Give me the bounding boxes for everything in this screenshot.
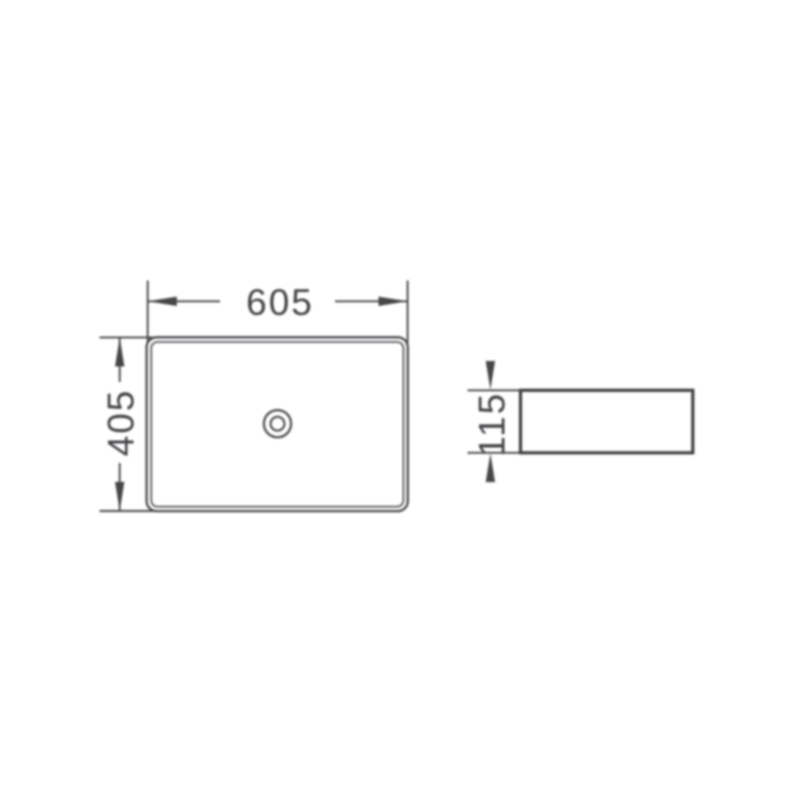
svg-text:405: 405 — [100, 389, 141, 457]
svg-text:115: 115 — [472, 392, 513, 457]
svg-text:605: 605 — [246, 282, 314, 323]
